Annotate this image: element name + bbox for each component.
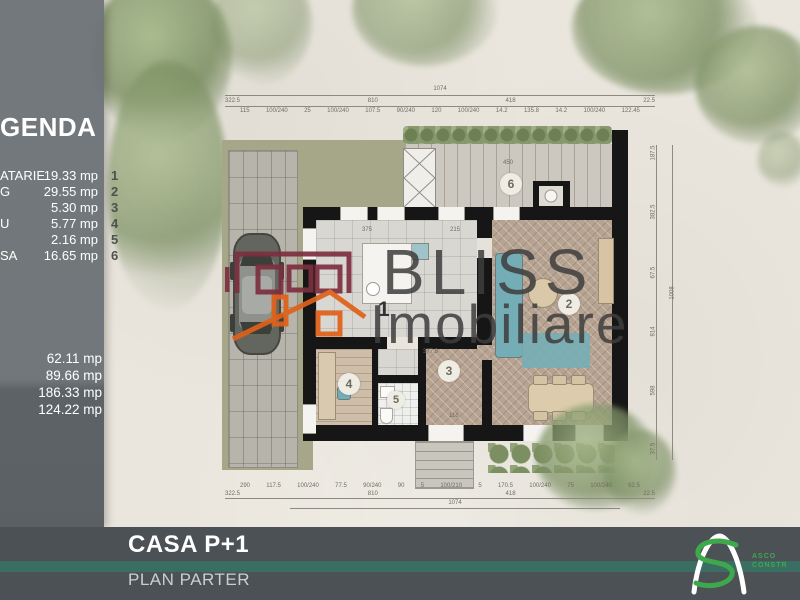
dim-label: 67.5 — [651, 263, 657, 278]
window — [438, 207, 465, 220]
asco-logo-text-line1: ASCO — [752, 553, 776, 561]
legend-room-area: 29.55 mp — [44, 184, 98, 199]
legend-num: 3 — [111, 200, 125, 215]
entry-door — [428, 425, 464, 441]
dim-label: 118 — [449, 413, 459, 419]
window — [377, 207, 405, 220]
legend-room-label: SA — [0, 248, 17, 263]
dim-line — [290, 508, 620, 509]
dim-label: 5 — [478, 483, 481, 489]
entry-steps — [415, 441, 474, 489]
dim-label: 100/240 — [590, 483, 612, 489]
wall-bath-top — [378, 375, 418, 383]
legend-title: GENDA — [0, 112, 96, 143]
dining-chair — [533, 375, 548, 385]
dim-right: 187.5382.567.581459837.5 — [646, 150, 661, 450]
room-label-4: 4 — [338, 373, 360, 395]
dim-label: 100/240 — [583, 108, 605, 114]
dim-label: 375 — [362, 227, 372, 233]
room-label-3: 3 — [438, 360, 460, 382]
dim-label: 598 — [651, 381, 657, 396]
dim-line — [225, 498, 655, 499]
dim-top-total: 1074 — [225, 86, 655, 92]
dim-label: 22.5 — [643, 98, 655, 104]
plan-subtitle: PLAN PARTER — [128, 570, 250, 590]
dim-top-detail: 115100/24025100/240107.590/240120100/240… — [240, 108, 640, 114]
legend-room-area: 5.77 mp — [51, 216, 98, 231]
dim-label: 810 — [368, 98, 378, 104]
watermark-line2: Imobiliare — [370, 296, 628, 352]
floorplan-presentation: 1 2 3 4 5 6 1074 322.581041822.5 115100/… — [0, 0, 800, 600]
wall-hall-living — [482, 360, 492, 425]
dim-label: 322.5 — [225, 98, 240, 104]
wall-bath-hall — [418, 349, 426, 425]
legend-num: 2 — [111, 184, 125, 199]
dim-label: 100/240 — [297, 483, 319, 489]
legend-room-label: ATARIE — [0, 168, 45, 183]
dim-line — [225, 106, 655, 107]
legend-panel: GENDA ATARIE19.33 mp G29.55 mp 5.30 mp U… — [0, 0, 104, 527]
dim-label: 418 — [506, 491, 516, 497]
dim-label: 290 — [240, 483, 250, 489]
dim-label: 450 — [503, 160, 513, 166]
dim-label: 14.2 — [496, 108, 508, 114]
dim-label: 115 — [240, 108, 250, 114]
dim-label: 100/240 — [327, 108, 349, 114]
dim-label: 100/240 — [529, 483, 551, 489]
asco-logo-icon — [684, 528, 754, 596]
legend-num: 6 — [111, 248, 125, 263]
dim-label: 22.5 — [643, 491, 655, 497]
terrace-hedge — [403, 126, 612, 144]
dim-label: 77.5 — [335, 483, 347, 489]
dim-right-total: 1008 — [666, 290, 679, 310]
window-terrace-door — [493, 207, 520, 220]
dim-top-mid: 322.581041822.5 — [225, 98, 655, 104]
legend-room-area: 19.33 mp — [44, 168, 98, 183]
dim-label: 25 — [304, 108, 311, 114]
dining-chair — [533, 411, 548, 421]
window — [340, 207, 368, 220]
room-label-6: 6 — [500, 173, 522, 195]
dim-label: 215 — [450, 227, 460, 233]
asco-logo-text-line2: CONSTR — [752, 562, 788, 570]
tree — [758, 132, 800, 188]
legend-total: 124.22 mp — [2, 402, 102, 417]
legend-num: 1 — [111, 168, 125, 183]
dim-label: 75 — [567, 483, 574, 489]
exterior-stair — [403, 148, 436, 208]
plan-title: CASA P+1 — [128, 531, 249, 559]
dim-label: 100/240 — [266, 108, 288, 114]
dim-bottom-mid: 322.581041822.5 — [225, 491, 655, 497]
footer-accent-line — [0, 561, 800, 572]
wall-right — [612, 130, 628, 441]
dim-label: 5 — [421, 483, 424, 489]
dim-label: 170.5 — [498, 483, 513, 489]
dim-label: 14.2 — [555, 108, 567, 114]
legend-room-label: U — [0, 216, 9, 231]
dim-label: 382.5 — [651, 204, 657, 219]
legend-room-area: 5.30 mp — [51, 200, 98, 215]
dim-label: 120 — [431, 108, 441, 114]
room-label-5: 5 — [387, 391, 405, 409]
window — [303, 404, 316, 434]
dim-label: 135.8 — [524, 108, 539, 114]
legend-room-area: 2.16 mp — [51, 232, 98, 247]
legend-room-area: 16.65 mp — [44, 248, 98, 263]
tree — [352, 0, 497, 66]
dim-label: 322.5 — [225, 491, 240, 497]
dim-label: 90/240 — [363, 483, 381, 489]
dining-chair — [552, 375, 567, 385]
wall-office-bath — [372, 349, 378, 425]
dim-label: 100/240 — [458, 108, 480, 114]
dim-label: 90/240 — [397, 108, 415, 114]
dim-line — [225, 95, 655, 96]
toilet — [380, 408, 393, 424]
legend-room-label: G — [0, 184, 10, 199]
dim-bottom-total: 1074 — [290, 500, 620, 506]
dim-label: 122.45 — [622, 108, 640, 114]
legend-total: 89.66 mp — [2, 368, 102, 383]
dim-label: 117.5 — [266, 483, 281, 489]
desk — [318, 352, 336, 420]
dim-label: 810 — [368, 491, 378, 497]
tree — [108, 60, 228, 310]
dim-label: 814 — [651, 322, 657, 337]
bliss-logo-icon — [225, 240, 385, 360]
dining-chair — [571, 375, 586, 385]
legend-num: 4 — [111, 216, 125, 231]
dim-label: 187.5 — [651, 145, 657, 160]
dim-label: 90 — [398, 483, 405, 489]
dim-label: 107.5 — [365, 108, 380, 114]
legend-total: 62.11 mp — [2, 351, 102, 366]
bbq-sink-icon — [539, 186, 563, 206]
dim-label: 418 — [506, 98, 516, 104]
legend-num: 5 — [111, 232, 125, 247]
dim-label: 62.5 — [628, 483, 640, 489]
dim-label: 37.5 — [651, 439, 657, 454]
dim-bottom-detail: 290117.5100/24077.590/240905100/2105170.… — [240, 483, 640, 489]
dim-label: 100/210 — [440, 483, 462, 489]
legend-total: 186.33 mp — [2, 385, 102, 400]
